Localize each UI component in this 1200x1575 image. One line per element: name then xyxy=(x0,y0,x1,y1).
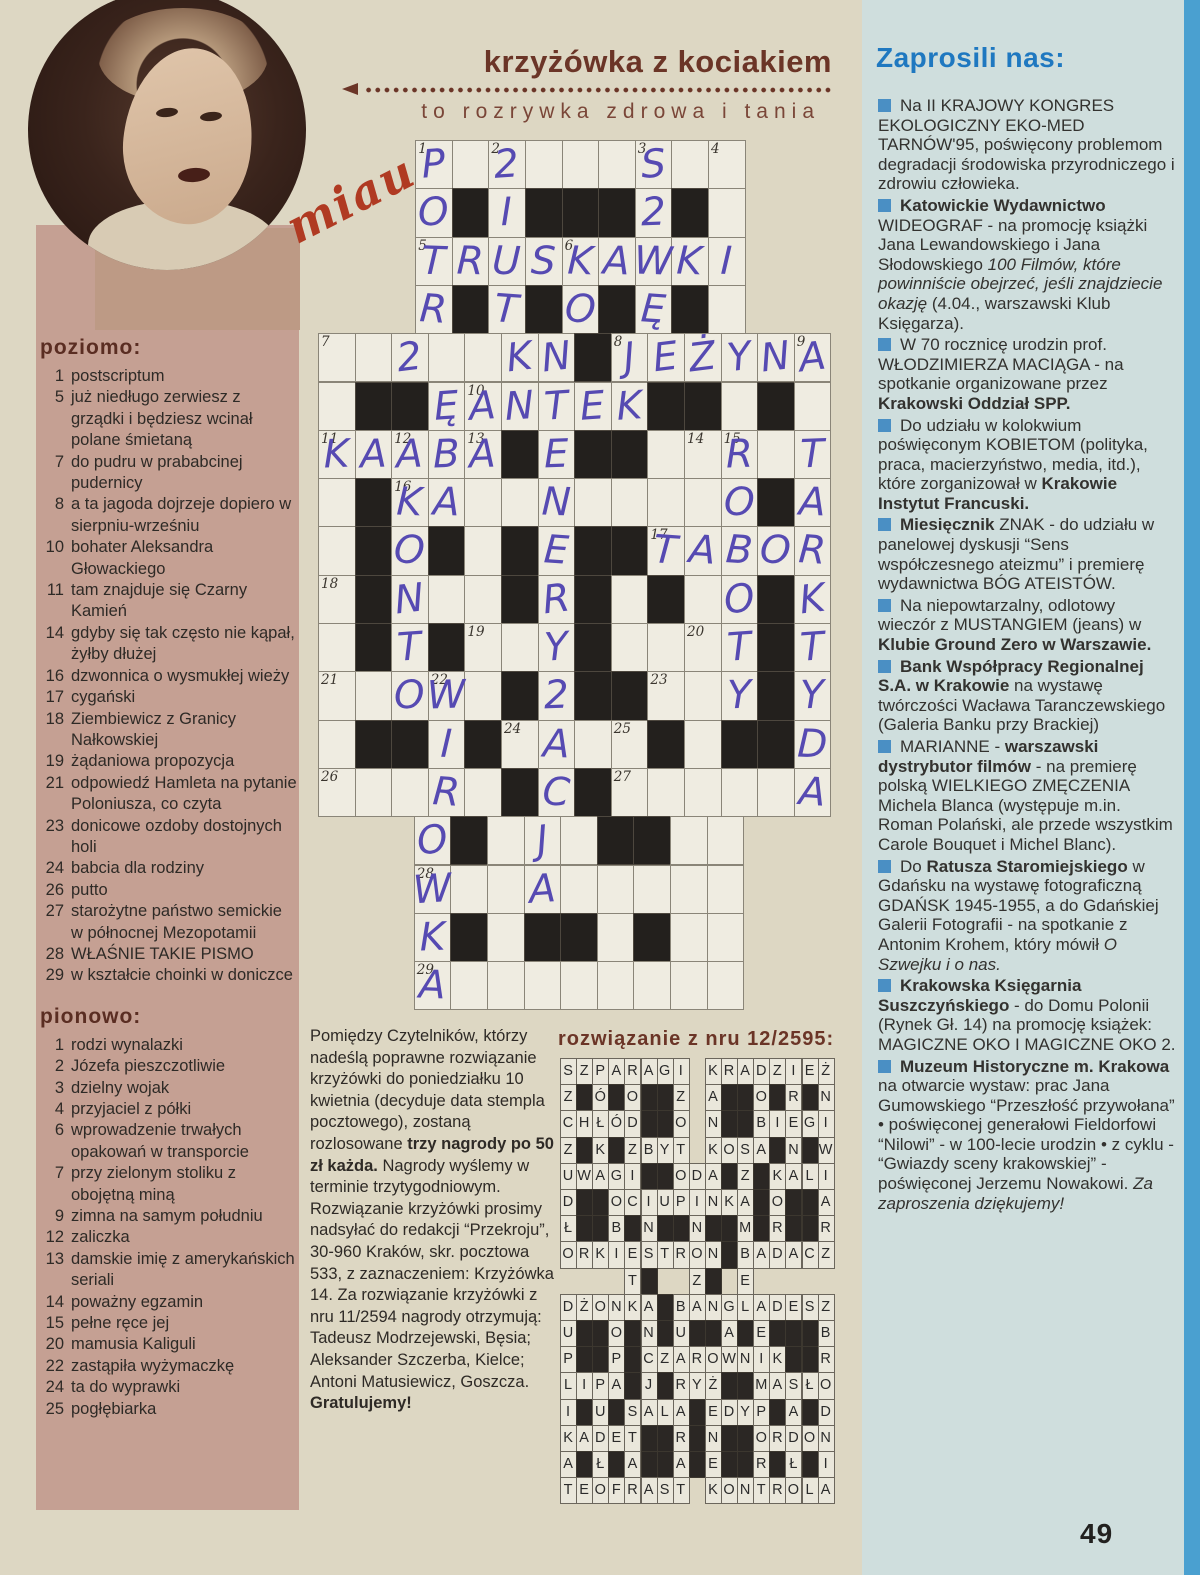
grid-cell xyxy=(707,961,745,1010)
solution-letter: E xyxy=(785,1110,801,1136)
grid-cell xyxy=(538,623,576,672)
solution-black-cell xyxy=(802,1320,819,1347)
solution-black-cell xyxy=(705,1268,722,1295)
solution-letter: T xyxy=(673,1137,689,1163)
solution-letter: A xyxy=(785,1163,801,1189)
invite-item: Na niepowtarzalny, odlotowy wieczór z MU… xyxy=(878,596,1176,655)
black-cell xyxy=(501,430,539,479)
grid-cell xyxy=(721,382,759,431)
clue-text: zimna na samym południu xyxy=(71,1206,298,1227)
down-heading: pionowo: xyxy=(40,1005,298,1029)
solution-letter: A xyxy=(576,1425,592,1451)
solution-letter: F xyxy=(608,1477,624,1503)
grid-cell xyxy=(598,140,636,189)
cell-number: 18 xyxy=(321,576,338,592)
black-cell xyxy=(574,333,612,382)
clue-number: 1 xyxy=(40,366,64,387)
solution-letter: R xyxy=(721,1058,737,1084)
clue-text: pogłębiarka xyxy=(71,1399,298,1420)
bullet-square-icon xyxy=(878,979,891,992)
solution-letter: S xyxy=(624,1399,640,1425)
solution-letter: D xyxy=(560,1189,576,1215)
black-cell xyxy=(574,768,612,817)
solution-letter: I xyxy=(785,1058,801,1084)
clue-text: dzielny wojak xyxy=(71,1078,298,1099)
text-segment: Gratulujemy! xyxy=(310,1394,412,1412)
solution-letter: O xyxy=(785,1477,801,1503)
solution-letter: A xyxy=(673,1346,689,1372)
grid-cell xyxy=(487,816,525,865)
solution-letter: R xyxy=(769,1215,785,1241)
black-cell xyxy=(574,526,612,575)
solution-black-cell xyxy=(657,1163,674,1190)
grid-cell xyxy=(684,720,722,769)
bullet-square-icon xyxy=(878,1060,891,1073)
grid-cell xyxy=(428,768,466,817)
solution-letter: S xyxy=(657,1477,673,1503)
solution-black-cell xyxy=(641,1268,658,1295)
solution-letter: N xyxy=(705,1241,721,1267)
invite-item: Krakowska Księgarnia Suszczyńskiego - do… xyxy=(878,976,1176,1054)
solution-black-cell xyxy=(721,1163,738,1190)
solution-black-cell xyxy=(576,1084,593,1111)
clue-text: ta do wyprawki xyxy=(71,1377,298,1398)
grid-cell xyxy=(574,720,612,769)
bullet-square-icon xyxy=(878,660,891,673)
bullet-square-icon xyxy=(878,99,891,112)
page-subtitle: to rozrywka zdrowa i tania xyxy=(420,100,820,124)
text-segment: Nagrody wyślemy w terminie trzytygodniow… xyxy=(310,1157,554,1391)
clue-text: w kształcie choinki w doniczce xyxy=(71,965,298,986)
cell-number: 25 xyxy=(614,721,631,737)
solution-black-cell xyxy=(737,1084,754,1111)
text-segment: MARIANNE - xyxy=(900,737,1005,756)
solution-letter: Ż xyxy=(705,1372,721,1398)
grid-cell xyxy=(757,430,795,479)
solution-letter: D xyxy=(624,1110,640,1136)
clue-item: 7do pudru w prababcinej pudernicy xyxy=(40,452,298,495)
cell-number: 23 xyxy=(650,672,667,688)
grid-cell xyxy=(794,575,832,624)
solution-letter: G xyxy=(721,1294,737,1320)
cell-number: 21 xyxy=(321,672,338,688)
grid-cell xyxy=(611,623,649,672)
clue-item: 27starożytne państwo semickie w północne… xyxy=(40,901,298,944)
solution-letter: N xyxy=(689,1215,705,1241)
solution-letter: L xyxy=(802,1163,818,1189)
solution-letter: P xyxy=(608,1346,624,1372)
grid-cell xyxy=(538,430,576,479)
grid-cell xyxy=(355,671,393,720)
solution-black-cell xyxy=(657,1294,674,1321)
solution-letter: L xyxy=(560,1372,576,1398)
grid-cell xyxy=(428,430,466,479)
solution-black-cell xyxy=(721,1110,738,1137)
cell-number: 24 xyxy=(504,721,521,737)
grid-cell xyxy=(428,333,466,382)
solution-letter: P xyxy=(592,1372,608,1398)
clue-number: 24 xyxy=(40,858,64,879)
solution-letter: N xyxy=(608,1294,624,1320)
page-number: 49 xyxy=(1080,1518,1113,1550)
solution-letter: U xyxy=(560,1163,576,1189)
solution-letter: A xyxy=(753,1137,769,1163)
solution-letter: A xyxy=(641,1477,657,1503)
solution-letter: D xyxy=(689,1163,705,1189)
solution-letter: O xyxy=(753,1084,769,1110)
solution-letter: I xyxy=(624,1163,640,1189)
clue-text: a ta jagoda dojrzeje dopiero w sierpniu-… xyxy=(71,494,298,537)
solution-letter: A xyxy=(705,1084,721,1110)
grid-cell xyxy=(647,478,685,527)
solution-letter: O xyxy=(608,1189,624,1215)
bullet-square-icon xyxy=(878,419,891,432)
solution-black-cell xyxy=(641,1163,658,1190)
cell-number: 2 xyxy=(491,141,500,157)
grid-cell xyxy=(684,768,722,817)
clue-number: 12 xyxy=(40,1227,64,1248)
grid-cell xyxy=(794,671,832,720)
solution-black-cell xyxy=(576,1137,593,1164)
clue-number: 20 xyxy=(40,1334,64,1355)
grid-cell xyxy=(524,865,562,914)
solution-black-cell xyxy=(705,1215,722,1242)
solution-letter: B xyxy=(641,1137,657,1163)
grid-cell xyxy=(708,237,746,286)
clue-text: mamusia Kaliguli xyxy=(71,1334,298,1355)
solution-letter: K xyxy=(592,1241,608,1267)
solution-black-cell xyxy=(802,1189,819,1216)
solution-letter: K xyxy=(560,1425,576,1451)
clue-item: 23donicowe ozdoby dostojnych holi xyxy=(40,816,298,859)
solution-black-cell xyxy=(737,1110,754,1137)
across-clues: 1postscriptum5już niedługo zerwiesz z gr… xyxy=(40,366,298,987)
grid-cell xyxy=(757,768,795,817)
solution-letter: I xyxy=(818,1163,834,1189)
black-cell xyxy=(647,575,685,624)
invite-item: Muzeum Historyczne m. Krakowa na otwarci… xyxy=(878,1057,1176,1214)
solution-letter: R xyxy=(753,1451,769,1477)
black-cell xyxy=(355,478,393,527)
clue-number: 18 xyxy=(40,709,64,752)
grid-cell xyxy=(414,816,452,865)
clue-text: już niedługo zerwiesz z grządki i będzie… xyxy=(71,387,298,451)
clues-column: poziomo: 1postscriptum5już niedługo zerw… xyxy=(40,336,298,1420)
solution-letter: A xyxy=(592,1163,608,1189)
grid-cell xyxy=(501,478,539,527)
cell-number: 22 xyxy=(431,672,448,688)
text-segment: Klubie Ground Zero w Warszawie. xyxy=(878,635,1151,654)
black-cell xyxy=(355,575,393,624)
bullet-square-icon xyxy=(878,740,891,753)
solution-grid: SZPARAGIKRADZIEŻZÓOZAORNCHŁÓDONBIEGIZKZB… xyxy=(560,1058,836,1506)
clue-text: starożytne państwo semickie w północnej … xyxy=(71,901,298,944)
grid-cell xyxy=(721,526,759,575)
solution-letter: G xyxy=(657,1058,673,1084)
solution-letter: O xyxy=(802,1425,818,1451)
crossword-grid: 1234567891011121314151617181920212223242… xyxy=(318,140,832,1010)
grid-cell xyxy=(574,478,612,527)
solution-letter: N xyxy=(641,1215,657,1241)
clue-number: 7 xyxy=(40,1163,64,1206)
solution-black-cell xyxy=(608,1084,625,1111)
grid-cell xyxy=(391,768,429,817)
grid-cell xyxy=(488,237,526,286)
grid-cell xyxy=(560,816,598,865)
solution-letter: Ł xyxy=(592,1110,608,1136)
solution-letter: A xyxy=(737,1189,753,1215)
solution-black-cell xyxy=(624,1346,641,1373)
solution-letter: R xyxy=(689,1346,705,1372)
grid-cell xyxy=(597,913,635,962)
solution-letter: A xyxy=(641,1294,657,1320)
solution-letter: I xyxy=(753,1346,769,1372)
black-cell xyxy=(574,623,612,672)
grid-cell xyxy=(428,382,466,431)
invite-item: Katowickie Wydawnictwo WIDEOGRAF - na pr… xyxy=(878,196,1176,333)
solution-letter: A xyxy=(689,1294,705,1320)
solution-black-cell xyxy=(641,1425,658,1452)
solution-letter: N xyxy=(705,1110,721,1136)
grid-cell xyxy=(757,333,795,382)
solution-letter: R xyxy=(769,1425,785,1451)
solution-letter: O xyxy=(624,1084,640,1110)
black-cell xyxy=(633,816,671,865)
solution-letter: B xyxy=(818,1320,834,1346)
grid-cell xyxy=(464,768,502,817)
solution-letter: U xyxy=(657,1189,673,1215)
grid-cell xyxy=(487,865,525,914)
clue-item: 20mamusia Kaliguli xyxy=(40,1334,298,1355)
solution-black-cell xyxy=(689,1399,706,1426)
grid-cell xyxy=(684,333,722,382)
solution-heading: rozwiązanie z nru 12/2595: xyxy=(558,1028,838,1051)
clue-item: 18Ziembiewicz z Granicy Nałkowskiej xyxy=(40,709,298,752)
solution-black-cell xyxy=(576,1399,593,1426)
solution-letter: K xyxy=(624,1294,640,1320)
solution-letter: T xyxy=(657,1241,673,1267)
solution-black-cell xyxy=(624,1215,641,1242)
solution-letter: E xyxy=(705,1399,721,1425)
solution-letter: S xyxy=(641,1241,657,1267)
solution-letter: O xyxy=(721,1137,737,1163)
black-cell xyxy=(450,816,488,865)
solution-black-cell xyxy=(753,1215,770,1242)
invite-item: Do Ratusza Staromiejskiego w Gdańsku na … xyxy=(878,857,1176,975)
solution-black-cell xyxy=(802,1346,819,1373)
solution-letter: O xyxy=(721,1477,737,1503)
solution-black-cell xyxy=(608,1451,625,1478)
grid-cell xyxy=(671,237,709,286)
text-segment: Muzeum Historyczne m. Krakowa xyxy=(900,1057,1169,1076)
cell-number: 11 xyxy=(321,431,338,447)
solution-letter: Z xyxy=(560,1137,576,1163)
solution-letter: I xyxy=(641,1189,657,1215)
cell-number: 7 xyxy=(321,334,330,350)
solution-letter: O xyxy=(769,1189,785,1215)
cell-number: 17 xyxy=(650,527,667,543)
solution-letter: S xyxy=(737,1137,753,1163)
grid-cell xyxy=(670,816,708,865)
solution-letter: Z xyxy=(769,1058,785,1084)
solution-black-cell xyxy=(802,1451,819,1478)
clue-number: 16 xyxy=(40,666,64,687)
grid-cell xyxy=(597,865,635,914)
clue-item: 26putto xyxy=(40,880,298,901)
solution-black-cell xyxy=(576,1346,593,1373)
grid-cell xyxy=(538,526,576,575)
solution-letter: R xyxy=(818,1215,834,1241)
black-cell xyxy=(757,478,795,527)
grid-cell xyxy=(525,140,563,189)
cell-number: 8 xyxy=(614,334,623,350)
black-cell xyxy=(597,816,635,865)
solution-black-cell xyxy=(657,1372,674,1399)
grid-cell xyxy=(597,961,635,1010)
clue-number: 2 xyxy=(40,1056,64,1077)
grid-cell xyxy=(524,816,562,865)
grid-cell xyxy=(670,865,708,914)
solution-black-cell xyxy=(721,1241,738,1268)
grid-cell xyxy=(721,575,759,624)
solution-letter: T xyxy=(673,1477,689,1503)
cell-number: 1 xyxy=(418,141,427,157)
grid-cell xyxy=(611,478,649,527)
solution-letter: Z xyxy=(624,1137,640,1163)
bullet-square-icon xyxy=(878,599,891,612)
clue-item: 24ta do wyprawki xyxy=(40,1377,298,1398)
solution-letter: G xyxy=(608,1163,624,1189)
solution-letter: C xyxy=(641,1346,657,1372)
invite-item: MARIANNE - warszawski dystrybutor filmów… xyxy=(878,737,1176,855)
solution-letter: Ó xyxy=(592,1084,608,1110)
clue-item: 1postscriptum xyxy=(40,366,298,387)
clue-text: pełne ręce jej xyxy=(71,1313,298,1334)
solution-black-cell xyxy=(576,1215,593,1242)
clue-item: 2Józefa pieszczotliwie xyxy=(40,1056,298,1077)
clue-item: 4przyjaciel z półki xyxy=(40,1099,298,1120)
solution-letter: D xyxy=(753,1058,769,1084)
clue-text: do pudru w prababcinej pudernicy xyxy=(71,452,298,495)
solution-letter: I xyxy=(818,1110,834,1136)
clue-text: WŁAŚNIE TAKIE PISMO xyxy=(71,944,298,965)
black-cell xyxy=(525,285,563,334)
bullet-square-icon xyxy=(878,518,891,531)
solution-letter: P xyxy=(592,1058,608,1084)
grid-cell xyxy=(487,961,525,1010)
solution-black-cell xyxy=(769,1137,786,1164)
cell-number: 5 xyxy=(418,238,427,254)
solution-black-cell xyxy=(689,1425,706,1452)
grid-cell xyxy=(562,285,600,334)
grid-cell xyxy=(428,575,466,624)
black-cell xyxy=(428,526,466,575)
grid-cell xyxy=(560,961,598,1010)
solution-black-cell xyxy=(592,1189,609,1216)
solution-letter: B xyxy=(737,1241,753,1267)
clue-item: 10bohater Aleksandra Głowackiego xyxy=(40,537,298,580)
grid-cell xyxy=(635,237,673,286)
solution-letter: N xyxy=(818,1425,834,1451)
solution-letter: S xyxy=(802,1294,818,1320)
clue-item: 25pogłębiarka xyxy=(40,1399,298,1420)
solution-letter: Z xyxy=(673,1084,689,1110)
clue-text: przyjaciel z półki xyxy=(71,1099,298,1120)
solution-black-cell xyxy=(641,1084,658,1111)
solution-letter: Z xyxy=(818,1294,834,1320)
grid-cell xyxy=(355,768,393,817)
solution-letter: E xyxy=(576,1477,592,1503)
black-cell xyxy=(647,720,685,769)
clue-text: babcia dla rodziny xyxy=(71,858,298,879)
grid-cell xyxy=(721,768,759,817)
solution-letter: R xyxy=(769,1477,785,1503)
clue-item: 1rodzi wynalazki xyxy=(40,1035,298,1056)
clue-text: Ziembiewicz z Granicy Nałkowskiej xyxy=(71,709,298,752)
clue-number: 3 xyxy=(40,1078,64,1099)
clue-number: 4 xyxy=(40,1099,64,1120)
cell-number: 4 xyxy=(711,141,720,157)
black-cell xyxy=(452,188,490,237)
grid-cell xyxy=(708,188,746,237)
cell-number: 12 xyxy=(394,431,411,447)
solution-letter: L xyxy=(657,1399,673,1425)
clue-item: 7przy zielonym stoliku z obojętną miną xyxy=(40,1163,298,1206)
black-cell xyxy=(501,671,539,720)
grid-cell xyxy=(560,865,598,914)
grid-cell xyxy=(647,623,685,672)
solution-black-cell xyxy=(769,1399,786,1426)
solution-letter: E xyxy=(753,1320,769,1346)
solution-letter: A xyxy=(641,1058,657,1084)
grid-cell xyxy=(794,430,832,479)
grid-cell xyxy=(794,382,832,431)
solution-black-cell xyxy=(785,1215,802,1242)
clue-number: 8 xyxy=(40,494,64,537)
grid-cell xyxy=(452,237,490,286)
clue-item: 29w kształcie choinki w doniczce xyxy=(40,965,298,986)
text-segment: Krakowski Oddział SPP. xyxy=(878,394,1070,413)
solution-letter: R xyxy=(673,1241,689,1267)
clue-text: cygański xyxy=(71,687,298,708)
solution-letter: N xyxy=(818,1084,834,1110)
text-segment: Do xyxy=(900,857,926,876)
solution-letter: A xyxy=(753,1241,769,1267)
clue-text: żądaniowa propozycja xyxy=(71,751,298,772)
clue-item: 5już niedługo zerwiesz z grządki i będzi… xyxy=(40,387,298,451)
bullet-square-icon xyxy=(878,338,891,351)
solution-letter: E xyxy=(785,1294,801,1320)
solution-letter: D xyxy=(818,1399,834,1425)
solution-black-cell xyxy=(753,1163,770,1190)
grid-cell xyxy=(415,188,453,237)
solution-black-cell xyxy=(641,1110,658,1137)
solution-letter: R xyxy=(785,1084,801,1110)
clue-text: wprowadzenie trwałych opakowań w transpo… xyxy=(71,1120,298,1163)
solution-letter: U xyxy=(592,1399,608,1425)
solution-black-cell xyxy=(657,1320,674,1347)
clue-text: poważny egzamin xyxy=(71,1292,298,1313)
grid-cell xyxy=(647,430,685,479)
grid-cell xyxy=(464,671,502,720)
solution-black-cell xyxy=(721,1084,738,1111)
solution-black-cell xyxy=(689,1451,706,1478)
clue-number: 11 xyxy=(40,580,64,623)
clue-item: 9zimna na samym południu xyxy=(40,1206,298,1227)
solution-letter: B xyxy=(608,1215,624,1241)
solution-letter: A xyxy=(608,1058,624,1084)
cell-number: 19 xyxy=(467,624,484,640)
